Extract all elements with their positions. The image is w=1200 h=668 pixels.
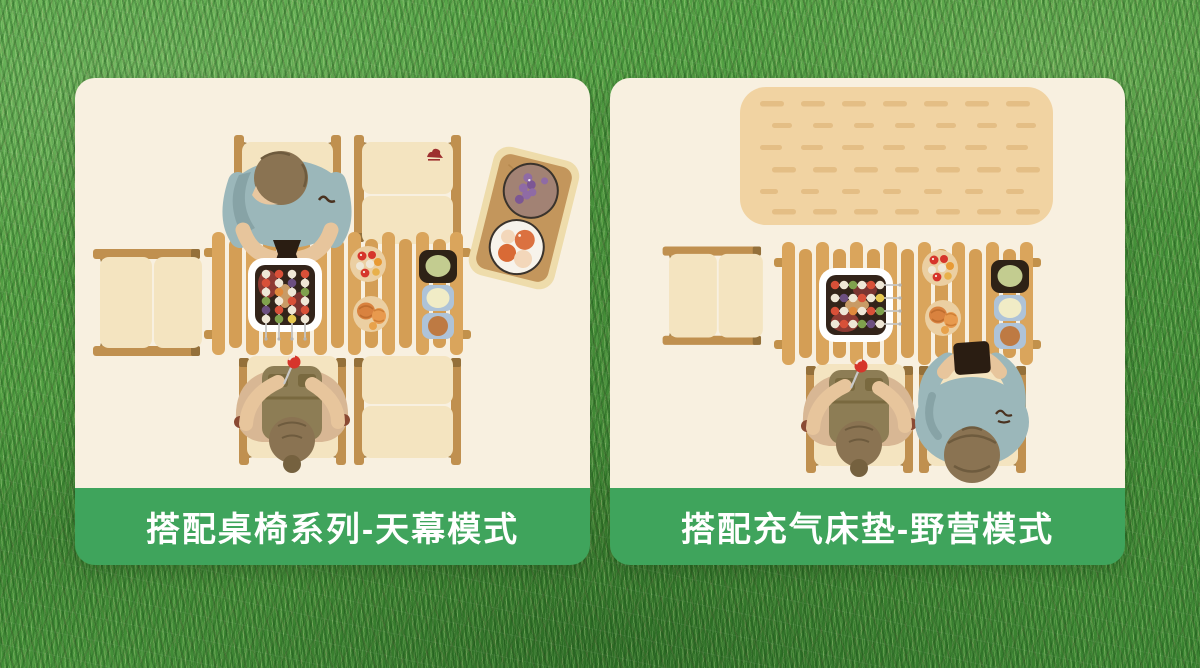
side-dishes: [991, 260, 1029, 349]
bread-plate: [353, 296, 389, 332]
camp-chair-bottom-right: [354, 356, 461, 465]
card-canopy-mode: 搭配桌椅系列-天幕模式: [75, 78, 590, 565]
card-camping-mode: 搭配充气床垫-野营模式: [610, 78, 1125, 565]
scene-canopy: [75, 78, 590, 488]
caption-text-canopy: 搭配桌椅系列-天幕模式: [146, 502, 519, 551]
scene-canopy-illustration: [75, 78, 590, 488]
bbq-grill: [819, 268, 902, 342]
tomato-plate: [922, 250, 958, 286]
camp-chair-top-right: [354, 135, 461, 244]
phone: [953, 341, 991, 375]
caption-text-camping: 搭配充气床垫-野营模式: [681, 502, 1054, 551]
scene-camping-illustration: [610, 78, 1125, 488]
side-dishes: [419, 250, 457, 339]
inflatable-mattress: [740, 87, 1053, 225]
bbq-grill: [248, 258, 322, 341]
caption-banner-canopy: 搭配桌椅系列-天幕模式: [75, 488, 590, 565]
folding-chair-left: [663, 246, 763, 344]
tomato-plate: [350, 246, 386, 282]
bread-plate: [925, 300, 961, 336]
scene-camping: [610, 78, 1125, 488]
folding-chair-left: [93, 249, 202, 356]
caption-banner-camping: 搭配充气床垫-野营模式: [610, 488, 1125, 565]
wooden-tray: [465, 143, 582, 292]
